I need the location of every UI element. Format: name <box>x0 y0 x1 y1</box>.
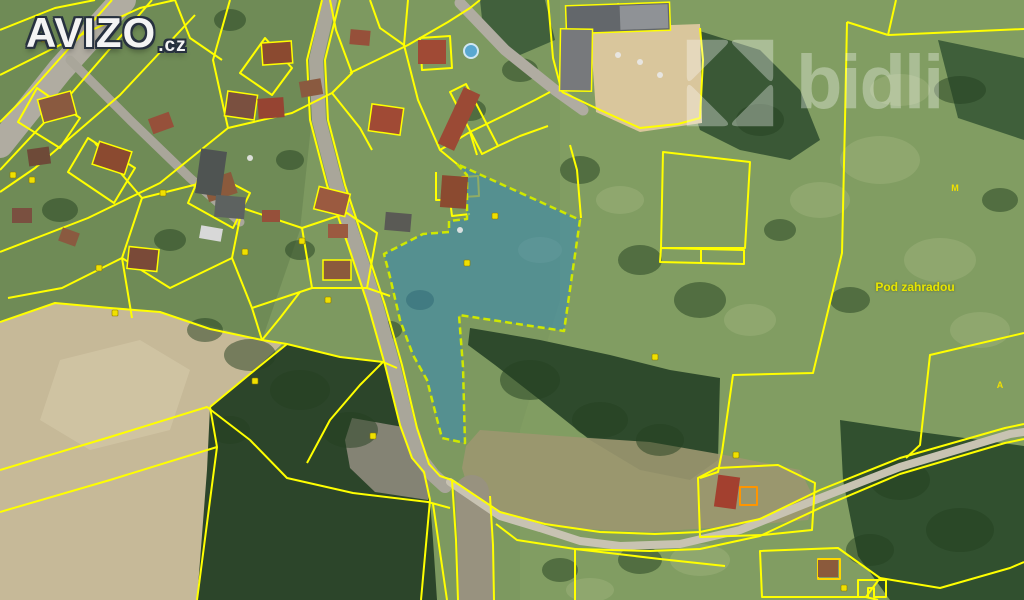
building-roof <box>257 97 284 119</box>
building-roof <box>214 195 246 220</box>
tree-clump <box>224 339 276 371</box>
tree-clump <box>560 156 600 184</box>
building-roof <box>328 224 348 238</box>
building-roof <box>262 210 280 222</box>
tree-clump <box>764 219 796 241</box>
grass-patch <box>840 136 920 184</box>
tree-clump <box>618 245 662 275</box>
map-marker-letter: A <box>997 380 1004 390</box>
tree-clump <box>926 508 994 552</box>
map-marker <box>96 265 102 271</box>
tree-clump <box>270 370 330 410</box>
building-roof <box>559 29 592 92</box>
building-roof <box>440 175 468 209</box>
map-marker <box>112 310 118 316</box>
map-marker-letter: M <box>951 183 959 193</box>
building-roof <box>12 208 32 223</box>
tree-clump <box>846 534 894 566</box>
building-roof <box>384 212 411 232</box>
watermark-bidli-text: bidli <box>796 28 942 138</box>
watermark-avizo-text: AVIZO <box>26 9 156 56</box>
white-object <box>637 59 643 65</box>
tree-clump <box>276 150 304 170</box>
tree-clump <box>830 287 870 313</box>
tree-clump <box>674 282 726 318</box>
building-roof <box>349 29 370 46</box>
watermark-avizo: AVIZO.cz <box>26 12 185 54</box>
map-marker <box>252 378 258 384</box>
building-roof <box>323 260 351 280</box>
building-roof <box>27 147 51 167</box>
map-marker <box>160 190 166 196</box>
map-marker <box>299 238 305 244</box>
map-marker <box>370 433 376 439</box>
tree-clump <box>322 412 378 448</box>
pool <box>464 44 478 58</box>
white-object <box>615 52 621 58</box>
map-marker <box>325 297 331 303</box>
map-marker <box>242 249 248 255</box>
map-marker <box>733 452 739 458</box>
grass-patch <box>790 182 850 218</box>
white-object <box>657 72 663 78</box>
white-object <box>247 155 253 161</box>
grass-patch <box>724 304 776 336</box>
map-label-pod-zahradou: Pod zahradou <box>875 280 954 294</box>
map-marker <box>464 260 470 266</box>
tree-clump <box>542 558 578 582</box>
building-roof <box>261 41 292 65</box>
grass-patch <box>904 238 976 282</box>
grass-patch <box>596 186 644 214</box>
tree-clump <box>500 360 560 400</box>
tree-clump <box>42 198 78 222</box>
map-marker <box>652 354 658 360</box>
building-roof <box>418 40 446 64</box>
map-marker <box>841 585 847 591</box>
building-roof <box>224 91 257 120</box>
building-roof <box>714 475 740 510</box>
building-roof <box>368 104 403 135</box>
building-roof <box>127 246 159 271</box>
watermark-avizo-suffix: .cz <box>158 35 186 56</box>
tree-clump <box>636 424 684 456</box>
map-marker <box>29 177 35 183</box>
tree-clump <box>572 402 628 438</box>
bidli-logo-icon <box>676 29 784 137</box>
tree-clump <box>982 188 1018 212</box>
building-roof <box>620 4 669 30</box>
road-south <box>472 492 476 600</box>
building-roof <box>818 560 838 577</box>
map-marker <box>492 213 498 219</box>
tree-clump <box>154 229 186 251</box>
watermark-bidli: bidli <box>676 28 942 138</box>
map-viewport[interactable]: MA AVIZO.cz bidli Pod zahradou <box>0 0 1024 600</box>
map-marker <box>10 172 16 178</box>
tree-clump <box>214 9 246 31</box>
white-object <box>457 227 463 233</box>
